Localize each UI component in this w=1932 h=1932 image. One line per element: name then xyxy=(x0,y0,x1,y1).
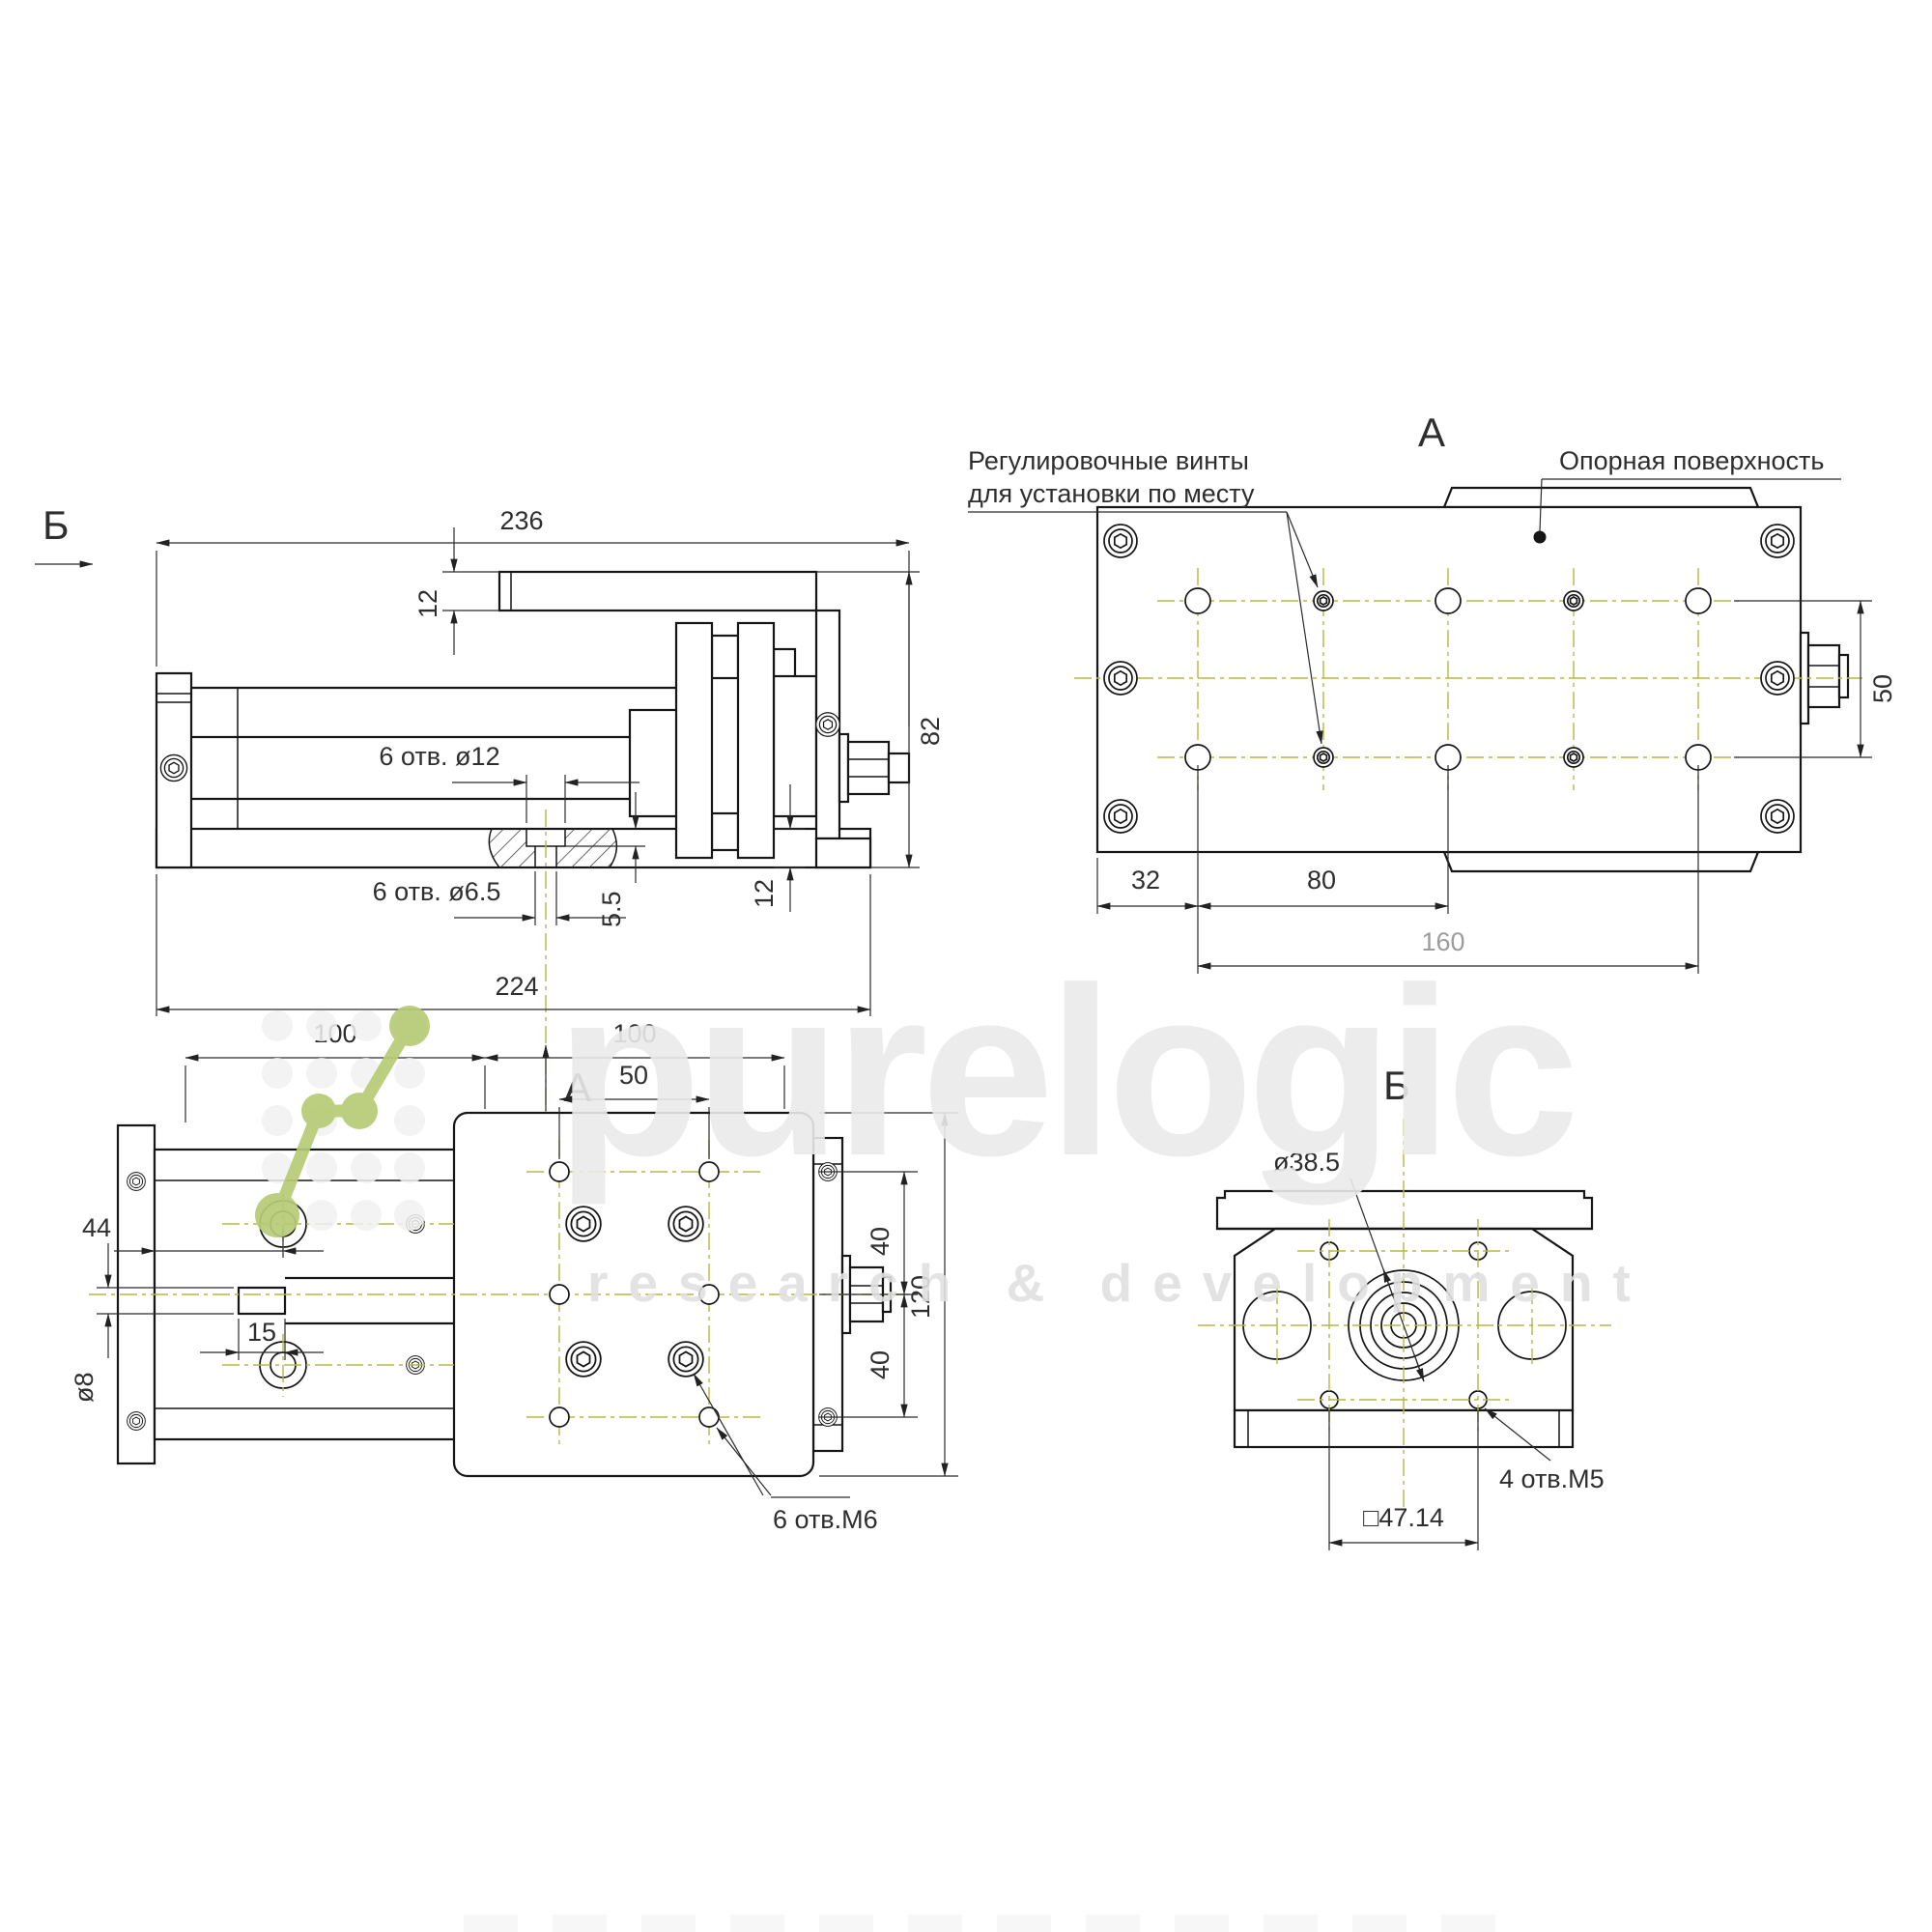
label-holes-m5: 4 отв.М5 xyxy=(1499,1464,1605,1493)
label-holes-m6: 6 отв.М6 xyxy=(773,1505,878,1534)
dim-span-right: 100 xyxy=(612,1019,656,1048)
dim-row-bottom: 40 xyxy=(866,1350,895,1379)
dim-plate-width: 120 xyxy=(906,1275,935,1319)
dim-boss-dia: ø38.5 xyxy=(1273,1148,1340,1177)
callout-surface: Опорная поверхность xyxy=(1559,446,1824,475)
dim-hole-step: 80 xyxy=(1307,866,1336,895)
support-tab-top xyxy=(1444,488,1758,507)
shaft-nut xyxy=(848,742,889,794)
dim-span-left: 100 xyxy=(313,1019,356,1048)
leader-dot xyxy=(1534,531,1547,544)
end-plate-screw-icon xyxy=(160,754,186,781)
top-view-a: А Регулировочные винты для установки по … xyxy=(968,410,1897,974)
dim-row-top: 40 xyxy=(866,1227,895,1256)
base-plate-top xyxy=(1097,507,1801,852)
dim-base-thickness: 12 xyxy=(750,879,779,908)
technical-drawing: Б 236 12 82 12 5.5 6 отв. ø12 6 отв. ø6.… xyxy=(0,0,1932,1932)
coupling-disc-1 xyxy=(676,623,712,858)
dim-shaft-dia: ø8 xyxy=(70,1372,99,1403)
screw-shaft-stub xyxy=(239,1288,285,1314)
ballnut-hub xyxy=(630,710,680,816)
dim-hole-span: 160 xyxy=(1421,927,1464,956)
view-b-title: Б xyxy=(1383,1063,1410,1108)
view-a-marker: А xyxy=(564,1065,591,1110)
motor-plate-screw-icon xyxy=(816,713,839,736)
side-view: Б 236 12 82 12 5.5 6 отв. ø12 6 отв. ø6.… xyxy=(35,502,945,1116)
dim-total-length: 236 xyxy=(499,506,543,535)
callout-adjust-line1: Регулировочные винты xyxy=(968,446,1249,475)
coupling-disc-2 xyxy=(738,623,774,858)
dim-hole-pattern: 224 xyxy=(495,972,538,1001)
drawing-canvas: Б 236 12 82 12 5.5 6 отв. ø12 6 отв. ø6.… xyxy=(0,0,1932,1932)
dim-square-pattern: □47.14 xyxy=(1363,1503,1444,1532)
callout-adjust-line2: для установки по месту xyxy=(968,479,1255,508)
dim-hole-cols: 50 xyxy=(619,1061,648,1090)
b-top-flange xyxy=(1217,1191,1592,1229)
motor-body xyxy=(774,676,816,816)
label-holes-d12: 6 отв. ø12 xyxy=(379,742,499,771)
support-tab-bottom xyxy=(1444,852,1758,871)
nut-washer xyxy=(839,734,848,802)
dim-edge-offset: 32 xyxy=(1131,866,1160,895)
dim-height: 82 xyxy=(916,717,945,746)
plan-view: 100 100 50 44 ø8 15 40 40 120 6 отв.М6 xyxy=(70,1019,958,1534)
view-b-marker: Б xyxy=(43,502,70,548)
screw-end-nut xyxy=(1808,645,1839,707)
dim-row-spacing: 50 xyxy=(1868,674,1897,703)
dim-stub-offset: 44 xyxy=(82,1213,111,1242)
end-view-b: Б ø38.5 □47.14 4 отв.М5 xyxy=(1198,1063,1611,1550)
carriage-top-plate xyxy=(499,572,816,611)
label-holes-d65: 6 отв. ø6.5 xyxy=(373,877,501,906)
view-a-title: А xyxy=(1418,410,1445,455)
dim-plate-thickness: 12 xyxy=(413,589,442,618)
dim-stub-length: 15 xyxy=(247,1318,276,1347)
dim-counterbore-depth: 5.5 xyxy=(597,891,626,927)
